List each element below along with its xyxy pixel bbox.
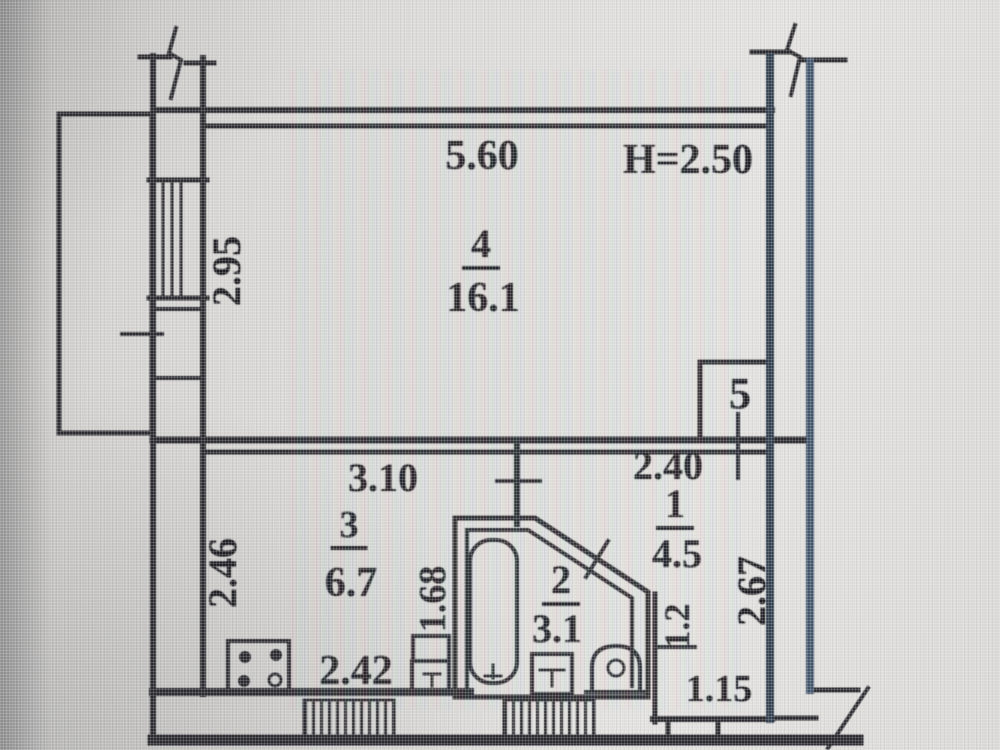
floor-plan-photo: 5.60 H=2.50 4 16.1 2.95 5 3.10 2.40 3 6.…: [0, 0, 1000, 750]
mid-wall: [153, 414, 808, 524]
dim-window-left: 2.95: [207, 236, 247, 306]
plan-linework: [0, 0, 1000, 750]
floor-plan: 5.60 H=2.50 4 16.1 2.95 5 3.10 2.40 3 6.…: [0, 0, 1000, 750]
right-outer-wall: [770, 57, 810, 719]
dim-niche-width: 1.15: [686, 670, 753, 708]
dim-partition: 1.68: [414, 566, 452, 633]
dim-kitchen-inner-width: 2.42: [319, 650, 393, 692]
top-wall: [153, 110, 772, 126]
washbasin-icon: [532, 654, 572, 694]
dim-niche-depth: 1.2: [659, 604, 695, 649]
dim-hall-depth: 2.67: [732, 556, 772, 626]
stove-icon: [228, 641, 289, 693]
dim-kitchen-depth: 2.46: [203, 538, 243, 608]
hatched-pier: [304, 700, 394, 736]
room-area-kitchen: 6.7: [325, 562, 378, 604]
window-left: [122, 180, 207, 378]
room-number-bathroom: 2: [542, 560, 580, 606]
bathroom-door-tick: [586, 541, 608, 577]
hatched-pier: [504, 700, 594, 736]
room-number-closet: 5: [729, 372, 751, 416]
ceiling-height-label: H=2.50: [623, 139, 753, 181]
dim-top-width: 5.60: [445, 135, 519, 177]
room-number-living: 4: [462, 224, 500, 270]
wall-break-top-right-icon: [752, 25, 845, 95]
dim-hall-width: 2.40: [633, 446, 703, 486]
room-area-bathroom: 3.1: [532, 609, 582, 649]
dim-kitchen-width: 3.10: [348, 458, 418, 498]
bathtub-icon: [470, 540, 517, 683]
room-area-hall: 4.5: [652, 534, 702, 574]
toilet-icon: [586, 646, 646, 692]
room-number-kitchen: 3: [331, 506, 368, 550]
kitchen-sink-icon: [412, 636, 449, 691]
room-area-living: 16.1: [446, 277, 520, 319]
left-annex-outline: [59, 114, 152, 433]
left-wall: [153, 56, 203, 741]
room-number-hall: 1: [656, 484, 694, 530]
